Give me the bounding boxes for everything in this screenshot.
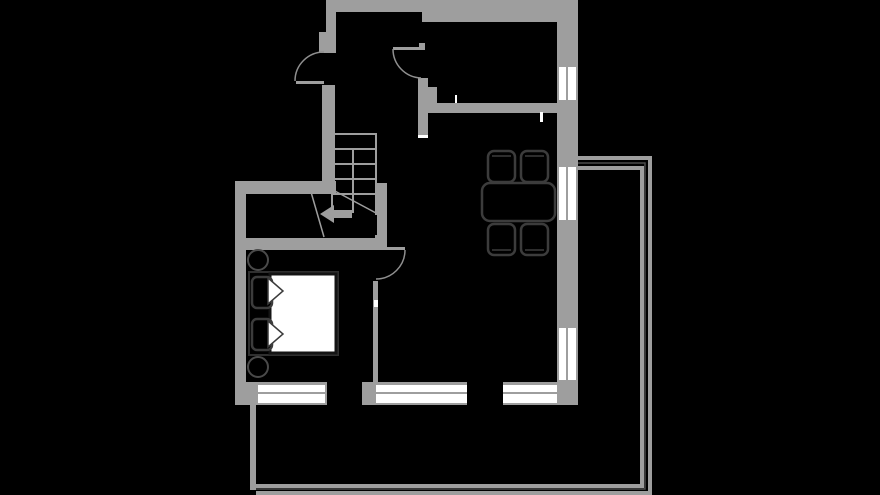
wall-kitchen-left-step [422,87,437,103]
floor-plan [0,0,880,495]
wall-kitchen-bottom [418,103,578,113]
wall-hall-top [235,181,336,194]
terrace-left-edge [250,405,256,490]
window-divider [258,392,325,394]
bed-mattress [270,274,336,353]
window-divider [566,167,568,220]
tick-bedroom-wall [374,300,378,307]
stair-arrow-head [320,205,334,223]
window-divider [376,392,467,394]
wall-top-band-left [326,0,430,12]
nightstand [248,357,268,377]
window-divider [566,328,568,380]
kitchen-door-arc [393,49,421,78]
wall-stair-right [377,183,387,239]
wall-bottom-left-corner [235,382,258,405]
tick-wall-end [418,135,428,138]
kitchen-door-leaf [393,47,423,50]
bedroom-door-arc [376,250,405,279]
tick-kitchen-wall [455,95,457,103]
wall-bedroom-right [373,281,378,382]
wall-kitchen-stub-bottom [418,113,428,138]
entry-door-leaf [296,81,324,84]
wall-entry-upper [326,0,336,53]
wall-bedroom-door-stub [375,235,385,248]
wall-top-band-right [422,0,578,22]
window-divider [503,392,557,394]
floor-plan-canvas [0,0,880,495]
wall-bottom-mid [362,382,376,405]
nightstand [248,250,268,270]
wall-entry-jog [319,32,327,53]
dining-table [482,183,555,221]
bedroom-door-leaf [378,247,405,250]
entry-door-arc [295,52,324,81]
wall-bottom-sliver [325,382,327,405]
tick-living-wall [540,112,543,122]
wall-bedroom-top [235,238,387,250]
stair-arrow-shaft [331,210,352,218]
wall-left-outer [235,181,246,405]
window-divider [566,67,568,100]
